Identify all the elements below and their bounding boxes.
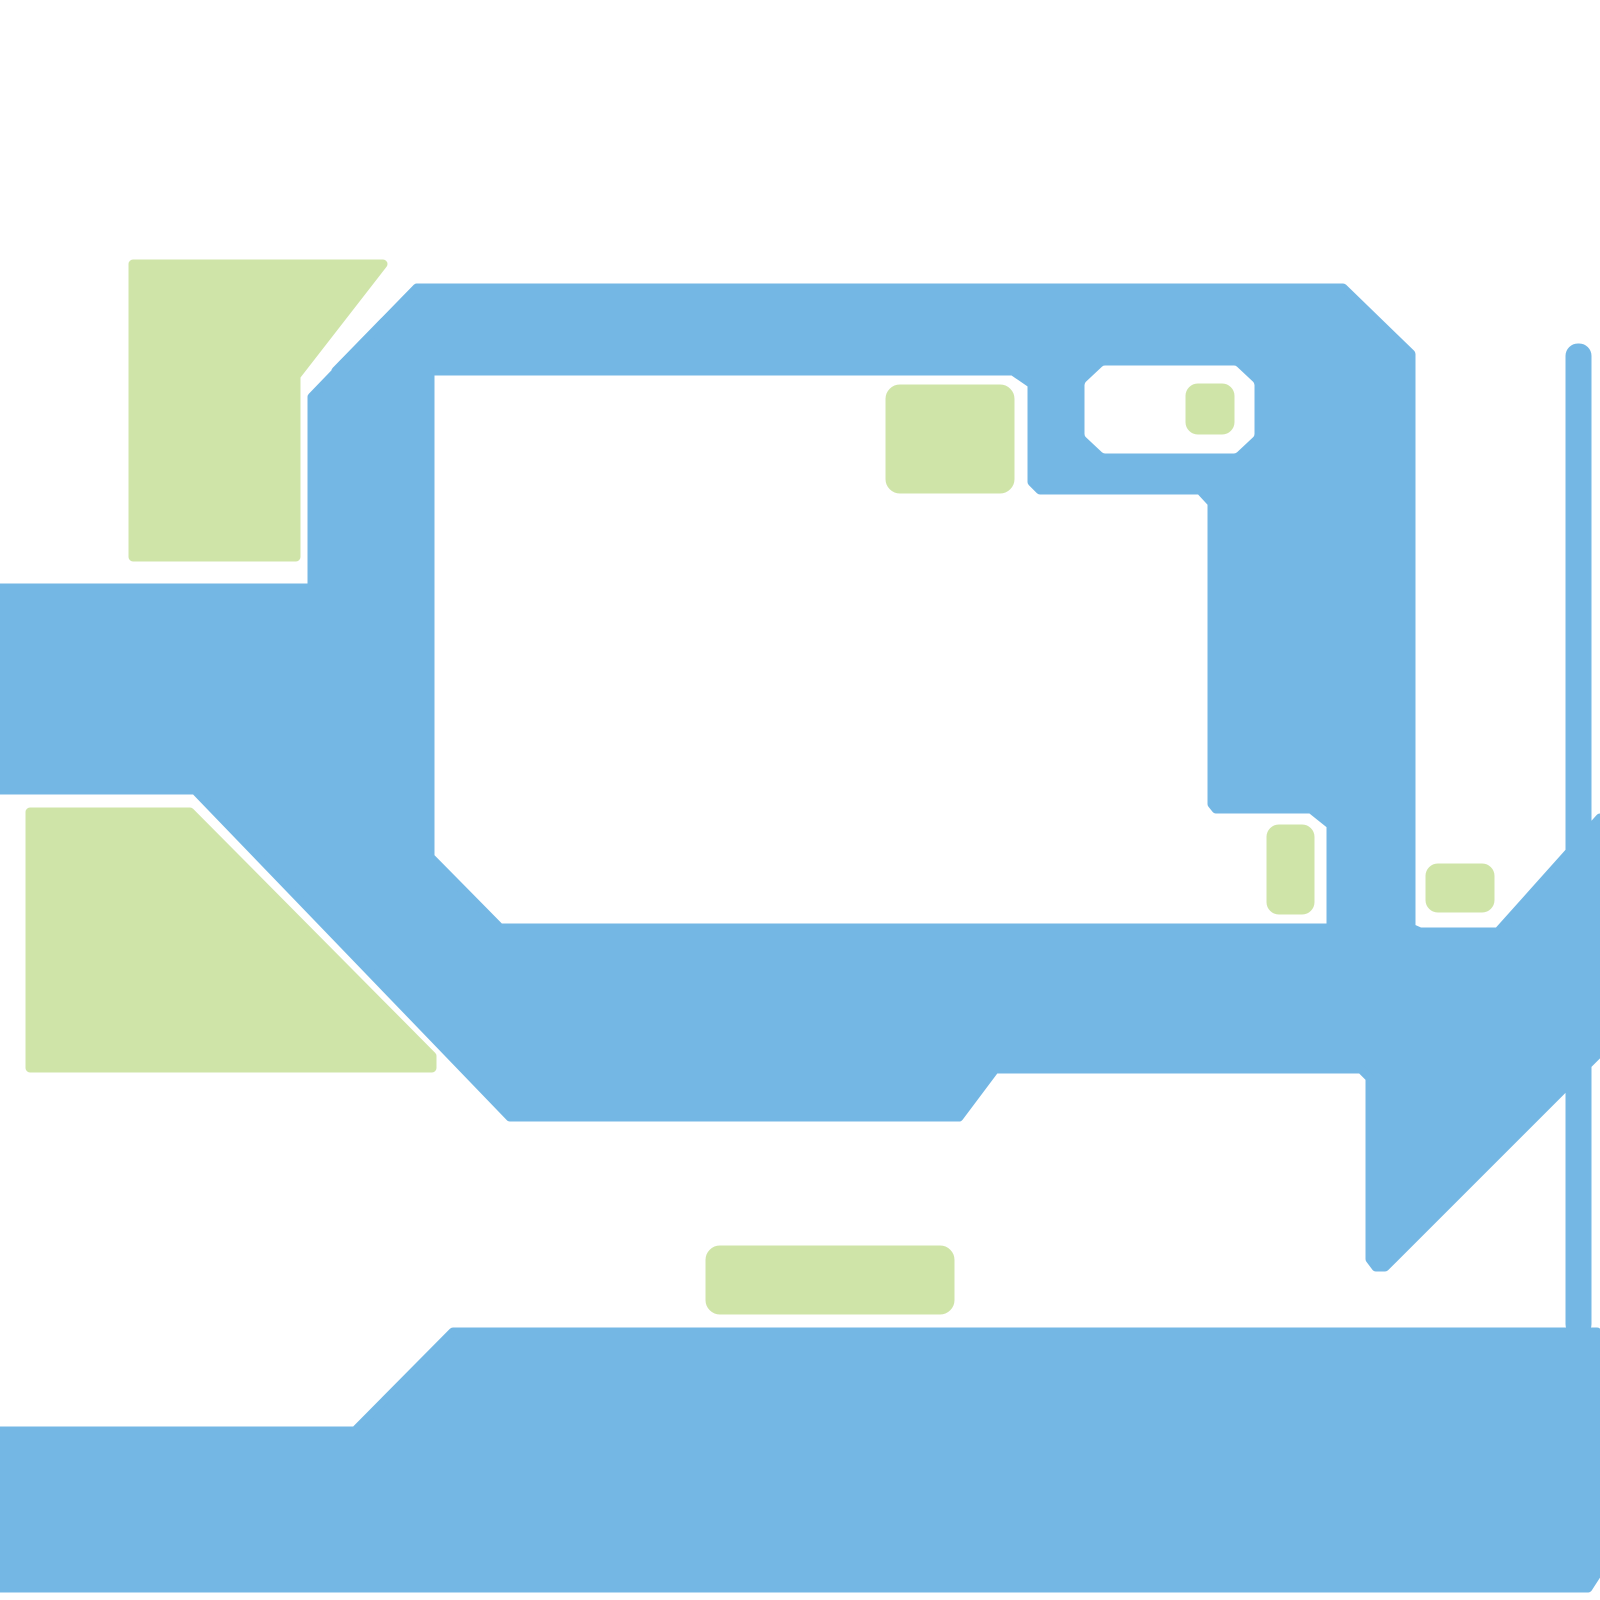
road-thin-vertical-lane [1570,348,1587,1332]
map-canvas [0,0,1600,1600]
map-render-surface [0,0,1600,1600]
park-dot-in-octagon [1190,388,1230,430]
road-bottom-band [0,1332,1597,1588]
park-square-in-block [890,389,1010,489]
park-small-vertical [1271,829,1310,910]
park-bottom-pill [710,1250,950,1310]
park-small-horizontal [1430,868,1490,908]
